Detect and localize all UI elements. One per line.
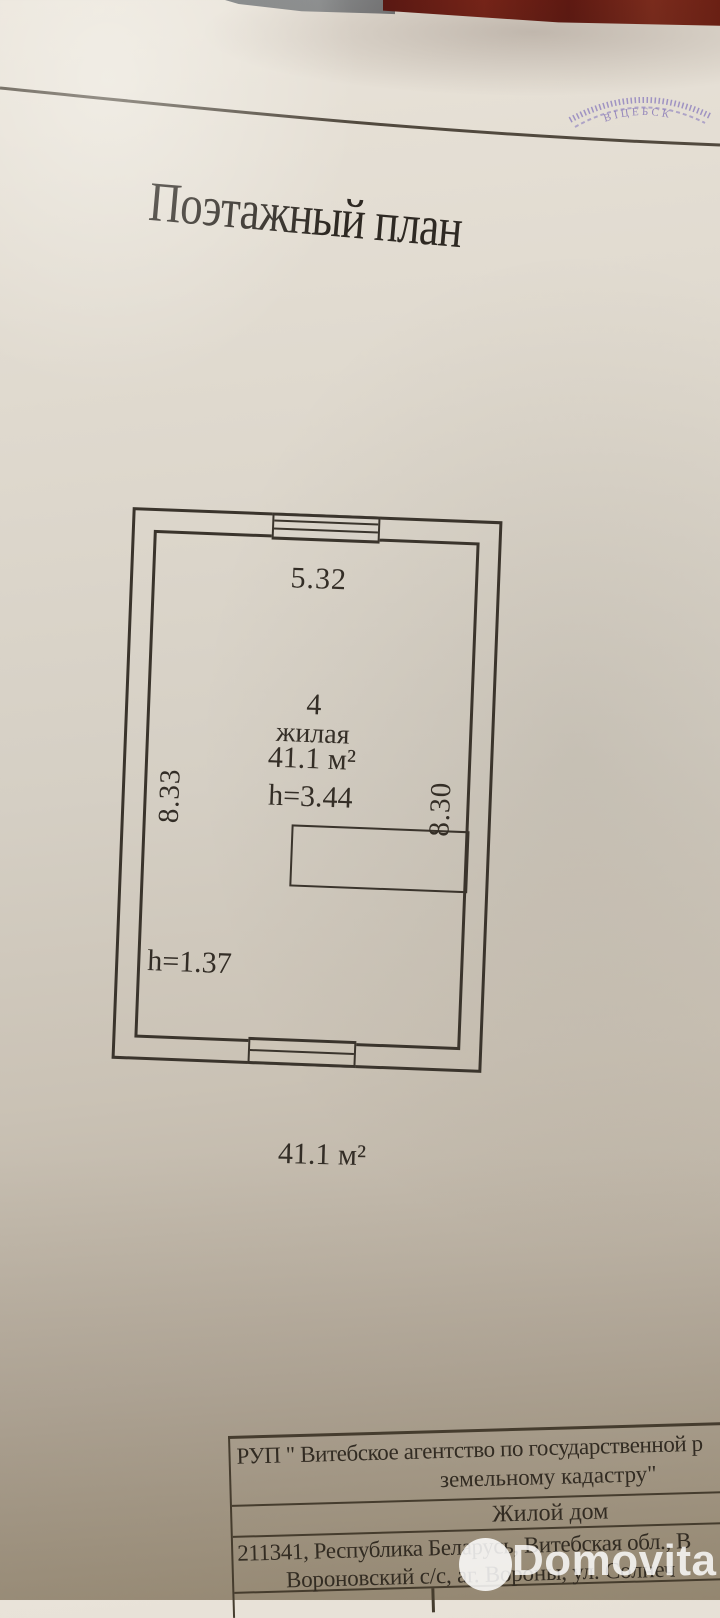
table-column-divider xyxy=(431,1588,434,1612)
background-fabric-gray xyxy=(225,0,395,16)
photo-of-floor-plan-document: { "doc": { "title": "Поэтажный план", "s… xyxy=(0,0,720,1600)
floor-plan: 5.32 4 жилая 41.1 м² h=3.44 8.33 8.30 h=… xyxy=(112,507,503,1073)
window-top-glazing-line-1 xyxy=(274,520,378,526)
ceiling-height: h=3.44 xyxy=(268,779,354,816)
background-fabric-red xyxy=(383,0,720,28)
total-area-label: 41.1 м² xyxy=(278,1137,367,1173)
window-top-glazing-line-2 xyxy=(274,528,378,534)
window-top xyxy=(272,512,381,543)
window-bottom-glazing-line xyxy=(250,1049,354,1055)
agency-stamp-icon: ВІЦЕБСК xyxy=(564,80,716,136)
ceiling-height-secondary: h=1.37 xyxy=(147,944,233,981)
watermark-logo-circle-icon xyxy=(459,1538,512,1591)
watermark-brand-text: Domovita xyxy=(512,1536,716,1586)
dimension-left: 8.33 xyxy=(133,754,206,837)
window-bottom xyxy=(247,1037,356,1068)
room-area: 41.1 м² xyxy=(267,740,356,777)
dimension-top: 5.32 xyxy=(290,561,348,597)
page-title: Поэтажный план xyxy=(146,170,464,261)
table-row-agency: РУП " Витебское агентство по государстве… xyxy=(230,1423,720,1507)
dimension-right: 8.30 xyxy=(404,768,477,851)
